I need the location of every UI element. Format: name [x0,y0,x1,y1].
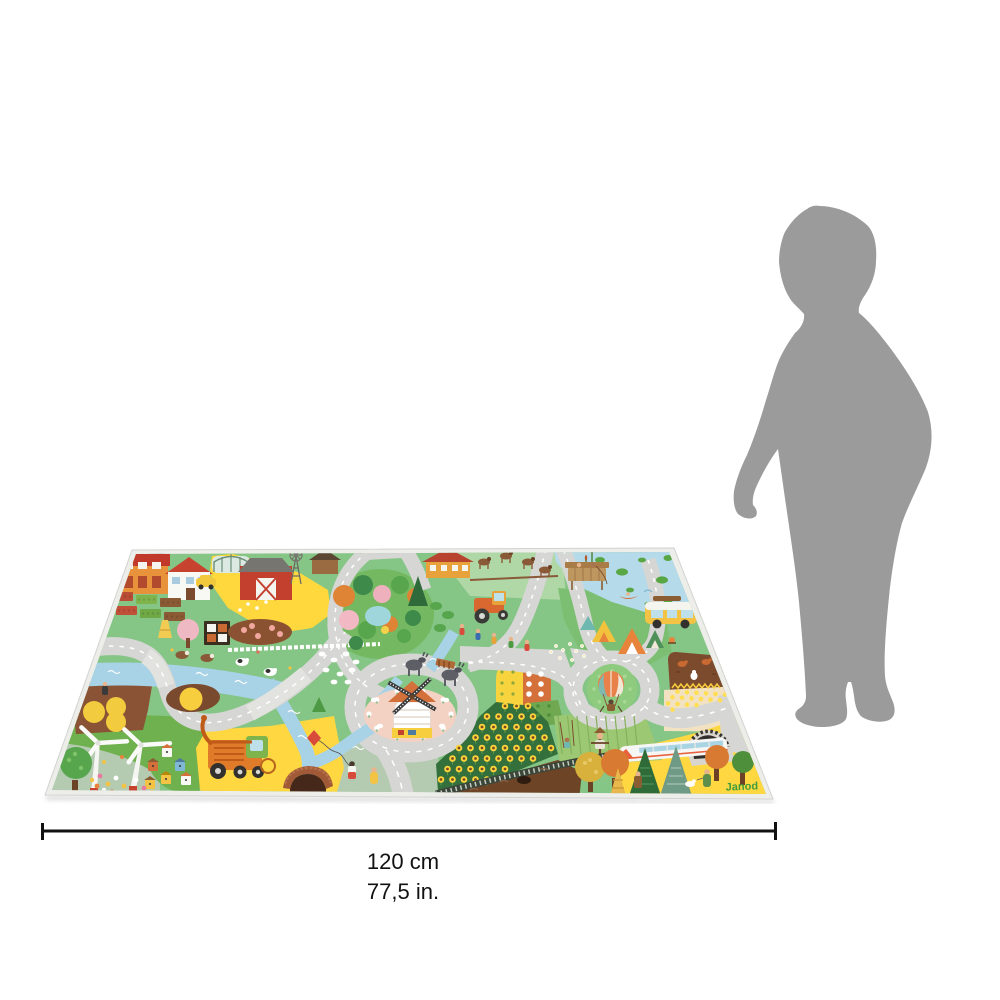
svg-text:77,5 in.: 77,5 in. [367,879,439,904]
svg-text:120 cm: 120 cm [367,849,439,874]
svg-text:Janod: Janod [725,780,758,793]
